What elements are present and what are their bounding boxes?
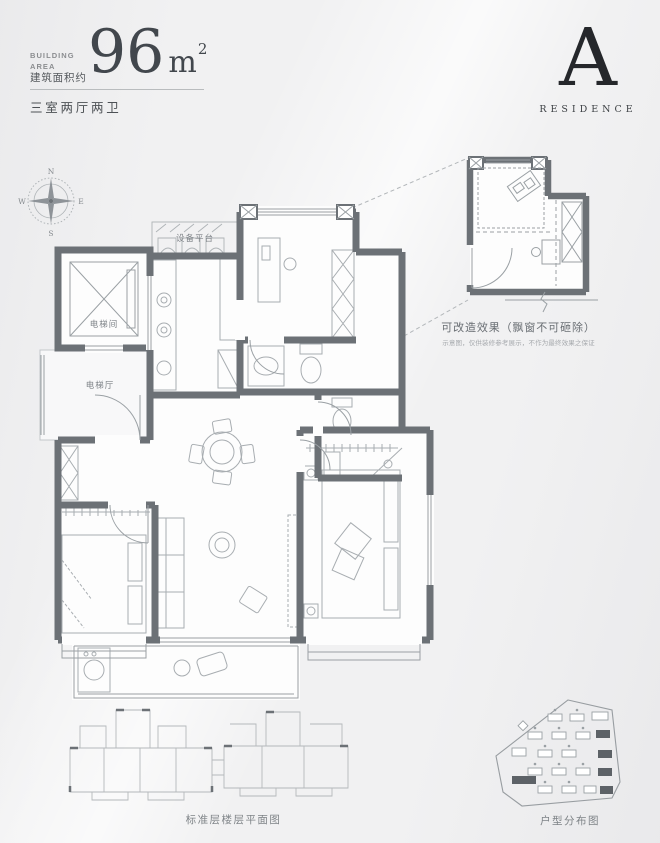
brand-name: RESIDENCE — [518, 104, 658, 115]
highlighted-units — [512, 730, 613, 794]
elevator-hall-label: 电梯厅 — [86, 380, 115, 390]
elevator-shaft-label: 电梯间 — [90, 319, 119, 329]
renovation-inset-plan — [469, 157, 598, 312]
area-prefix-label: 建筑面积约 — [30, 70, 87, 85]
equipment-platform-label: 设备平台 — [176, 233, 214, 243]
header-divider — [30, 89, 204, 90]
standard-floor-caption: 标准层楼层平面图 — [146, 812, 321, 827]
area-exponent: 2 — [198, 40, 208, 58]
compass-east-label: E — [78, 197, 83, 206]
site-plan-caption: 户型分布图 — [504, 813, 636, 828]
area-value: 96 m 2 — [88, 22, 207, 82]
compass-west-label: W — [18, 197, 26, 206]
compass-north-label: N — [48, 167, 55, 176]
brand-letter: A — [548, 14, 628, 102]
floorplan-page: N S W E — [0, 0, 660, 843]
standard-floor-drawing — [70, 710, 348, 800]
unit-layout-label: 三室两厅两卫 — [30, 97, 122, 116]
compass-icon: N S W E — [18, 167, 84, 238]
area-unit: m — [168, 45, 196, 80]
renovation-disclaimer: 示意图，仅供装修参考展示，不作为最终效果之保证 — [416, 337, 621, 347]
plan-graphics: N S W E — [0, 0, 660, 843]
renovation-title: 可改造效果（飘窗不可砸除） — [426, 319, 611, 335]
area-number: 96 — [88, 22, 164, 82]
main-floorplan: 设备平台 电梯间 电梯厅 — [40, 205, 434, 700]
compass-south-label: S — [48, 229, 53, 238]
site-plan-drawing — [496, 700, 620, 806]
